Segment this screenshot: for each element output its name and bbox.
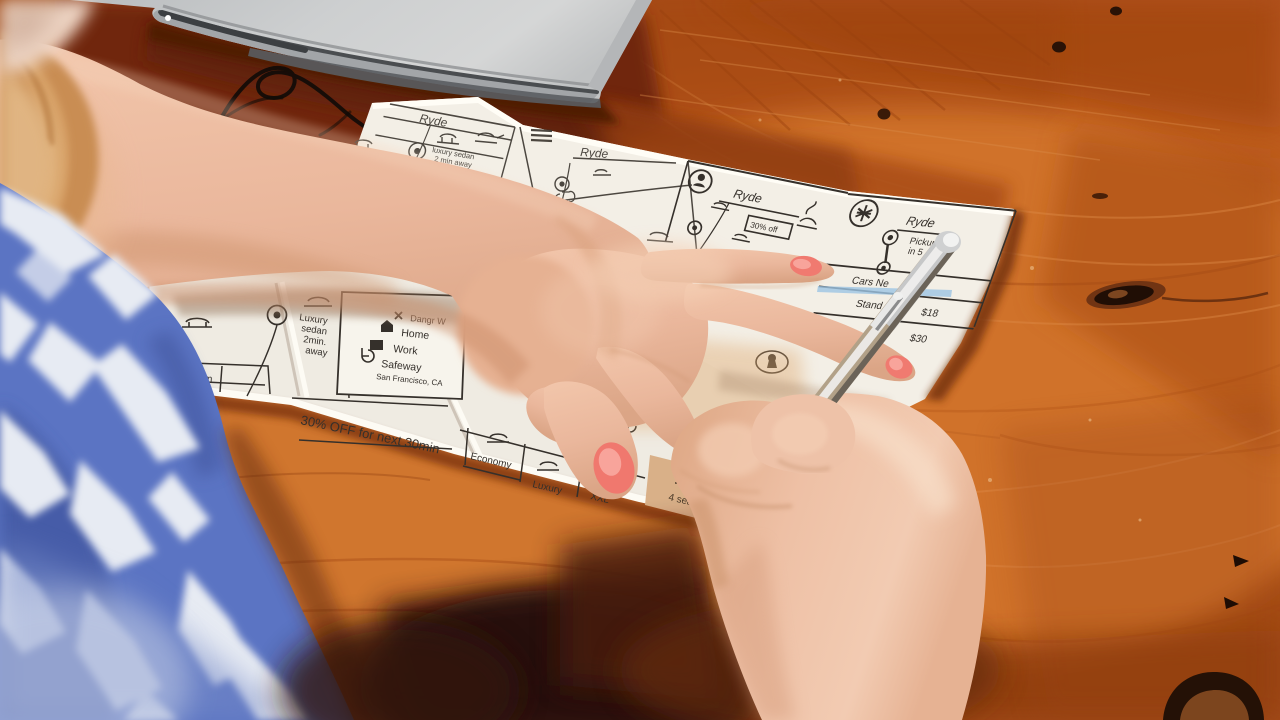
svg-text:Ryde: Ryde <box>904 214 937 230</box>
svg-text:Ryde: Ryde <box>580 145 609 161</box>
